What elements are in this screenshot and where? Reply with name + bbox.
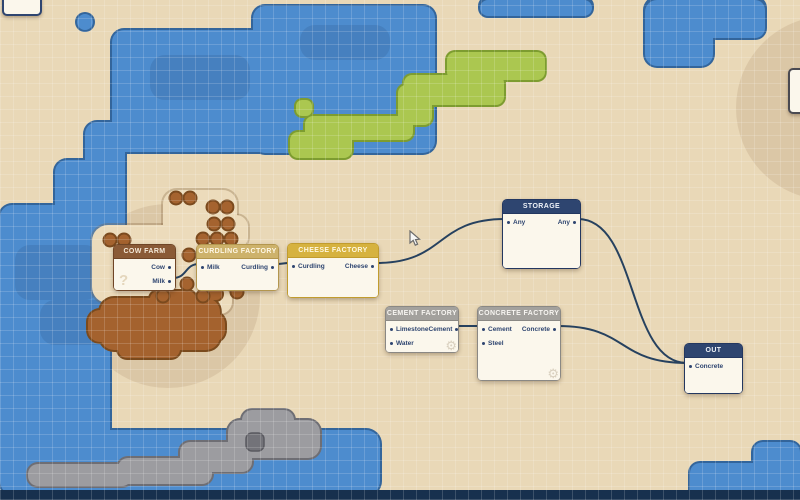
node-title-cow-farm[interactable]: COW FARM bbox=[114, 245, 175, 259]
port-dot bbox=[271, 266, 274, 269]
port-dot bbox=[168, 266, 171, 269]
port-row: Steel bbox=[478, 336, 560, 350]
node-out[interactable]: OUTConcrete bbox=[684, 343, 743, 394]
port-dot bbox=[482, 328, 485, 331]
node-cow-farm[interactable]: COW FARMCowMilk? bbox=[113, 244, 176, 291]
port-row: Concrete bbox=[685, 359, 742, 373]
node-title-curdling-factory[interactable]: CURDLING FACTORY bbox=[197, 245, 278, 259]
input-port-curdling[interactable]: Curdling bbox=[292, 263, 325, 270]
input-port-cement[interactable]: Cement bbox=[482, 326, 512, 333]
output-port-cheese[interactable]: Cheese bbox=[345, 263, 374, 270]
node-cheese-factory[interactable]: CHEESE FACTORYCurdlingCheese bbox=[287, 243, 379, 298]
node-title-out[interactable]: OUT bbox=[685, 344, 742, 358]
node-body: LimestoneCementWater⚙ bbox=[386, 321, 458, 352]
port-label: Curdling bbox=[298, 263, 325, 270]
port-label: Any bbox=[558, 219, 570, 226]
port-dot bbox=[689, 365, 692, 368]
port-label: Water bbox=[396, 340, 414, 347]
port-dot bbox=[201, 266, 204, 269]
node-title-cheese-factory[interactable]: CHEESE FACTORY bbox=[288, 244, 378, 258]
gear-icon: ⚙ bbox=[547, 366, 559, 382]
port-row: LimestoneCement bbox=[386, 322, 458, 336]
node-title-storage[interactable]: STORAGE bbox=[503, 200, 580, 214]
port-dot bbox=[553, 328, 556, 331]
port-label: Cheese bbox=[345, 263, 368, 270]
gear-icon: ⚙ bbox=[445, 338, 457, 354]
port-label: Any bbox=[513, 219, 525, 226]
port-label: Cow bbox=[151, 264, 165, 271]
port-label: Milk bbox=[207, 264, 220, 271]
port-label: Milk bbox=[152, 278, 165, 285]
node-concrete-factory[interactable]: CONCRETE FACTORYCementConcreteSteel⚙ bbox=[477, 306, 561, 381]
port-dot bbox=[573, 221, 576, 224]
port-dot bbox=[390, 342, 393, 345]
node-cement-factory[interactable]: CEMENT FACTORYLimestoneCementWater⚙ bbox=[385, 306, 459, 353]
port-row: CurdlingCheese bbox=[288, 259, 378, 273]
input-port-concrete[interactable]: Concrete bbox=[689, 363, 723, 370]
input-port-limestone[interactable]: Limestone bbox=[390, 326, 429, 333]
offscreen-node-right[interactable] bbox=[788, 68, 800, 114]
node-body: CurdlingCheese bbox=[288, 258, 378, 297]
node-body: CowMilk? bbox=[114, 259, 175, 290]
node-curdling-factory[interactable]: CURDLING FACTORYMilkCurdling bbox=[196, 244, 279, 291]
port-dot bbox=[390, 328, 393, 331]
output-port-concrete[interactable]: Concrete bbox=[522, 326, 556, 333]
output-port-curdling[interactable]: Curdling bbox=[241, 264, 274, 271]
node-title-concrete-factory[interactable]: CONCRETE FACTORY bbox=[478, 307, 560, 321]
output-port-cement[interactable]: Cement bbox=[429, 326, 459, 333]
node-body: MilkCurdling bbox=[197, 259, 278, 290]
node-layer: COW FARMCowMilk?CURDLING FACTORYMilkCurd… bbox=[0, 0, 800, 500]
input-port-steel[interactable]: Steel bbox=[482, 340, 504, 347]
input-port-any[interactable]: Any bbox=[507, 219, 525, 226]
port-label: Curdling bbox=[241, 264, 268, 271]
node-title-cement-factory[interactable]: CEMENT FACTORY bbox=[386, 307, 458, 321]
input-port-water[interactable]: Water bbox=[390, 340, 414, 347]
port-dot bbox=[292, 265, 295, 268]
port-label: Concrete bbox=[695, 363, 723, 370]
node-storage[interactable]: STORAGEAnyAny bbox=[502, 199, 581, 269]
offscreen-node-top-left[interactable] bbox=[2, 0, 42, 16]
port-row: CementConcrete bbox=[478, 322, 560, 336]
node-body: AnyAny bbox=[503, 214, 580, 268]
game-map: COW FARMCowMilk?CURDLING FACTORYMilkCurd… bbox=[0, 0, 800, 500]
output-port-milk[interactable]: Milk bbox=[152, 278, 171, 285]
port-dot bbox=[371, 265, 374, 268]
port-row: AnyAny bbox=[503, 215, 580, 229]
node-body: Concrete bbox=[685, 358, 742, 393]
question-mark-watermark: ? bbox=[119, 272, 128, 289]
input-port-milk[interactable]: Milk bbox=[201, 264, 220, 271]
port-label: Limestone bbox=[396, 326, 429, 333]
port-label: Steel bbox=[488, 340, 504, 347]
port-dot bbox=[455, 328, 458, 331]
output-port-cow[interactable]: Cow bbox=[151, 264, 171, 271]
port-dot bbox=[482, 342, 485, 345]
output-port-any[interactable]: Any bbox=[558, 219, 576, 226]
port-label: Concrete bbox=[522, 326, 550, 333]
node-body: CementConcreteSteel⚙ bbox=[478, 321, 560, 380]
port-row: MilkCurdling bbox=[197, 260, 278, 274]
port-dot bbox=[168, 280, 171, 283]
port-label: Cement bbox=[488, 326, 512, 333]
port-label: Cement bbox=[429, 326, 453, 333]
port-dot bbox=[507, 221, 510, 224]
